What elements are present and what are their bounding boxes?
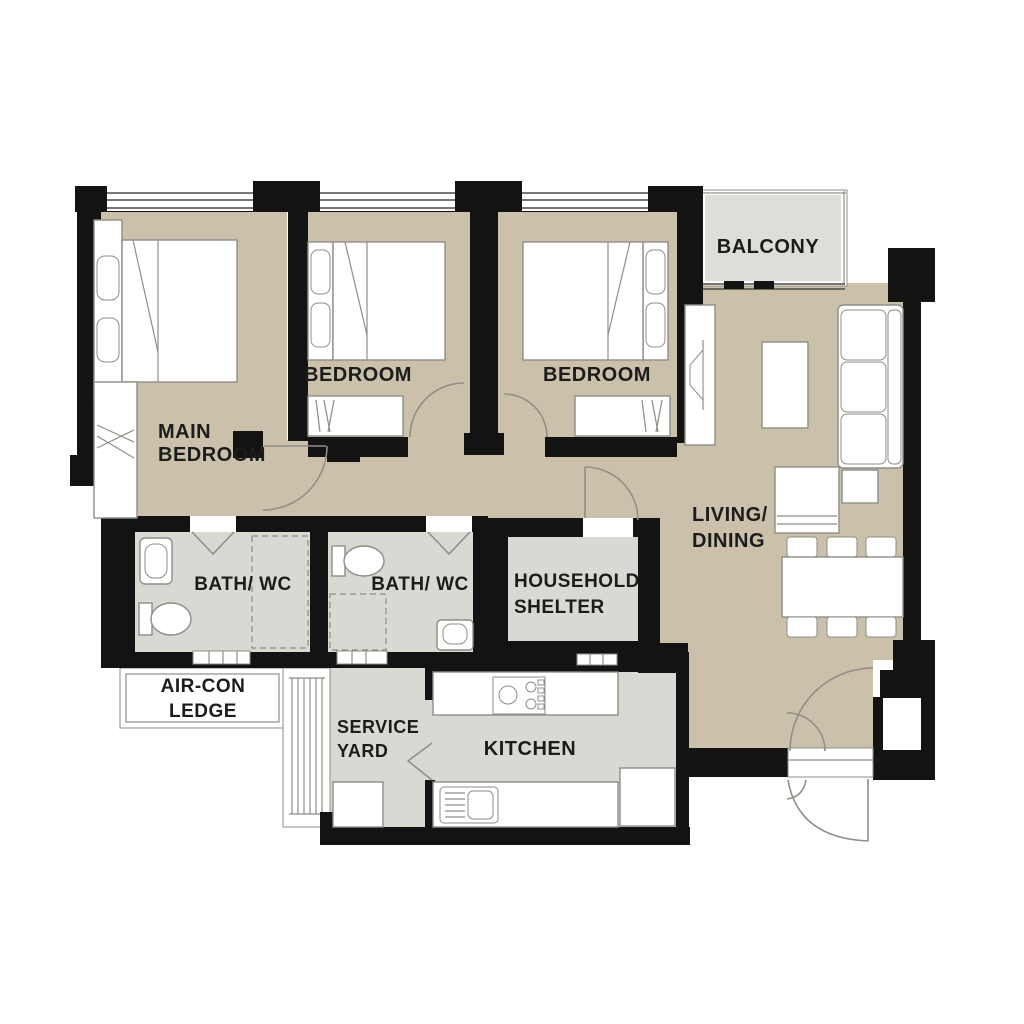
washing-machine xyxy=(333,782,383,827)
side-table xyxy=(842,470,878,503)
wall-segment xyxy=(888,248,935,302)
armchair xyxy=(775,467,839,533)
dining-table xyxy=(782,557,903,617)
wardrobe xyxy=(575,396,670,436)
label-household-shelter: HOUSEHOLD xyxy=(514,571,640,592)
bath1-door-gap xyxy=(190,516,236,532)
single-bed xyxy=(523,242,643,360)
window-band xyxy=(320,191,455,211)
label-living-dining: LIVING/ xyxy=(692,504,768,526)
dining-chair xyxy=(827,617,857,637)
vent-window xyxy=(577,654,617,665)
wall-segment xyxy=(455,181,522,212)
bedroom3-door-gap xyxy=(504,437,545,457)
wall-segment xyxy=(921,697,935,752)
window-band xyxy=(107,191,253,211)
window-band xyxy=(522,191,648,211)
label-service-yard: YARD xyxy=(337,741,388,761)
label-kitchen: KITCHEN xyxy=(484,738,576,760)
wall-segment xyxy=(873,697,883,753)
wall-segment xyxy=(545,437,677,457)
bedroom2-door-gap xyxy=(408,437,464,457)
living-floor-south xyxy=(685,655,873,753)
dining-chair xyxy=(827,537,857,557)
label-main-bedroom: MAIN xyxy=(158,421,211,443)
wall-segment xyxy=(880,670,935,698)
shelter-door-gap xyxy=(583,518,633,537)
label-aircon-ledge: LEDGE xyxy=(169,701,237,722)
label-service-yard: SERVICE xyxy=(337,717,419,737)
wall-segment xyxy=(310,516,328,658)
dining-chair xyxy=(787,617,817,637)
kitchen-sink xyxy=(440,787,498,823)
label-main-bedroom: BEDROOM xyxy=(158,444,266,466)
label-bath-wc-2: BATH/ WC xyxy=(371,574,469,595)
label-bedroom-3: BEDROOM xyxy=(543,364,651,386)
pillow xyxy=(311,250,330,294)
label-household-shelter: SHELTER xyxy=(514,597,605,618)
pillow xyxy=(646,250,665,294)
toilet xyxy=(139,603,191,635)
wall-segment xyxy=(470,211,498,437)
dining-chair xyxy=(866,537,896,557)
vent-window xyxy=(337,651,387,664)
label-living-dining: DINING xyxy=(692,530,765,552)
bed-headboard xyxy=(94,220,122,402)
wall-segment xyxy=(236,516,310,532)
balcony-slider-tick xyxy=(724,281,744,289)
entrance-threshold xyxy=(788,748,873,777)
entrance-recess xyxy=(883,698,921,750)
wall-segment xyxy=(464,433,504,455)
wall-segment xyxy=(320,827,690,845)
wall-segment xyxy=(425,652,677,672)
vent-window xyxy=(193,651,250,664)
wash-basin xyxy=(437,620,473,650)
bath2-door-gap xyxy=(426,516,472,532)
wall-segment xyxy=(873,750,935,780)
label-balcony: BALCONY xyxy=(717,236,820,258)
double-bed xyxy=(122,240,237,382)
aircon-louvre-box xyxy=(283,668,330,827)
sofa xyxy=(838,305,903,468)
wash-basin-bowl xyxy=(145,544,167,578)
wardrobe xyxy=(94,382,137,518)
wall-segment xyxy=(101,652,478,668)
floor-plan-canvas: MAIN BEDROOM BEDROOM BEDROOM BALCONY LIV… xyxy=(0,0,1024,1024)
wall-segment xyxy=(288,211,308,441)
label-aircon-ledge: AIR-CON xyxy=(161,676,246,697)
wall-segment xyxy=(678,748,788,777)
wall-segment xyxy=(903,302,921,642)
label-bath-wc-1: BATH/ WC xyxy=(194,574,292,595)
pillow xyxy=(97,318,119,362)
pillow xyxy=(97,256,119,300)
wardrobe xyxy=(308,396,403,436)
wall-segment xyxy=(253,181,320,212)
pillow xyxy=(646,303,665,347)
windows xyxy=(107,191,648,211)
wall-segment xyxy=(327,438,360,462)
dining-chair xyxy=(866,617,896,637)
wall-segment xyxy=(893,640,935,672)
wall-segment xyxy=(328,516,426,532)
dining-chair xyxy=(787,537,817,557)
refrigerator xyxy=(620,768,675,826)
toilet xyxy=(332,546,384,576)
balcony-slider-tick xyxy=(754,281,774,289)
connector-floor xyxy=(660,440,687,643)
cooker-hob xyxy=(493,677,545,714)
pillow xyxy=(311,303,330,347)
floor-plan: MAIN BEDROOM BEDROOM BEDROOM BALCONY LIV… xyxy=(0,0,1024,1024)
coffee-table xyxy=(762,342,808,428)
dining-set xyxy=(782,537,903,637)
label-bedroom-2: BEDROOM xyxy=(304,364,412,386)
